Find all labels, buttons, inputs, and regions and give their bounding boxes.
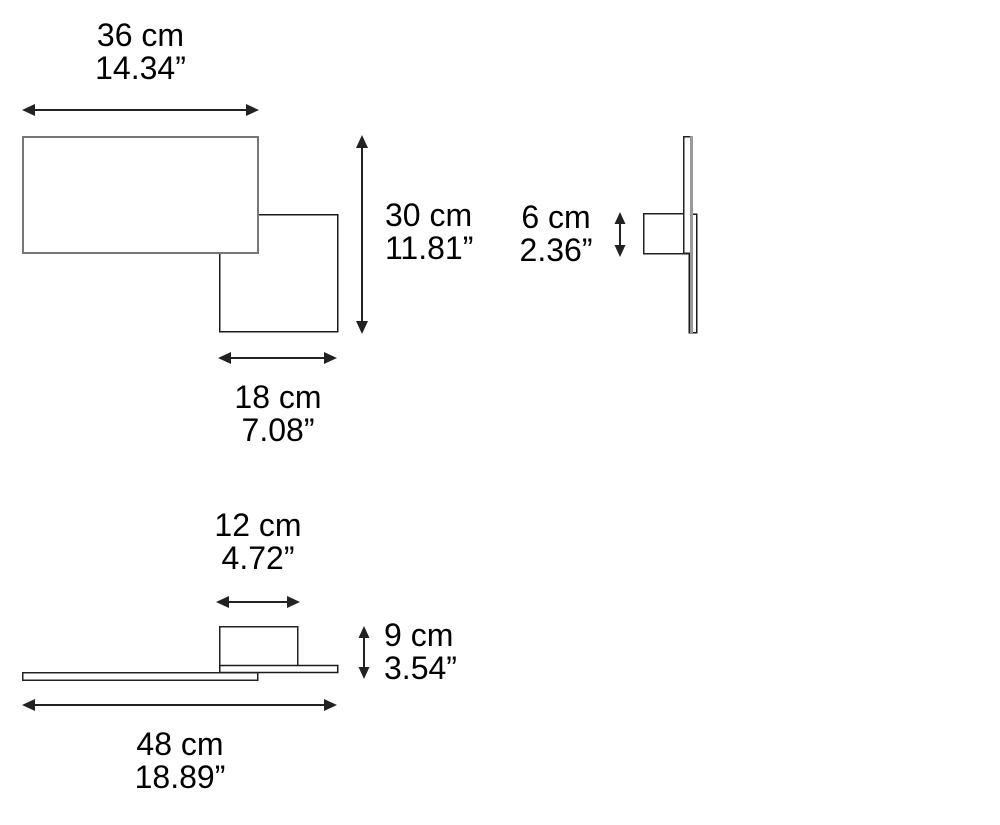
small-panel-width-label: 18 cm 7.08” bbox=[178, 381, 378, 447]
small-panel-width-cm: 18 cm bbox=[178, 381, 378, 414]
front-height-label: 30 cm 11.81” bbox=[385, 199, 473, 265]
total-width-cm: 48 cm bbox=[80, 728, 280, 761]
side-view bbox=[615, 136, 697, 333]
top-depth-arrow-top-icon bbox=[359, 626, 370, 638]
small-width-arrow-left-icon bbox=[218, 352, 231, 364]
diagram-linework bbox=[0, 0, 1000, 825]
front-width-arrow-left-icon bbox=[22, 104, 35, 116]
small-width-arrow-right-icon bbox=[324, 352, 337, 364]
front-height-inch: 11.81” bbox=[385, 232, 473, 265]
small-panel-width-inch: 7.08” bbox=[178, 414, 378, 447]
dimension-diagram: 36 cm 14.34” 30 cm 11.81” 18 cm 7.08” 6 … bbox=[0, 0, 1000, 825]
side-depth-label: 6 cm 2.36” bbox=[496, 201, 616, 267]
front-height-arrow-bottom-icon bbox=[356, 321, 368, 334]
side-depth-arrow-bottom-icon bbox=[615, 245, 626, 257]
front-width-cm: 36 cm bbox=[22, 19, 259, 52]
top-depth-inch: 3.54” bbox=[384, 652, 457, 685]
mount-width-cm: 12 cm bbox=[198, 509, 318, 542]
top-depth-label: 9 cm 3.54” bbox=[384, 619, 457, 685]
front-height-cm: 30 cm bbox=[385, 199, 473, 232]
large-panel bbox=[23, 137, 258, 253]
top-mount-box bbox=[220, 627, 298, 668]
mount-width-arrow-left-icon bbox=[216, 596, 229, 608]
mount-width-label: 12 cm 4.72” bbox=[198, 509, 318, 575]
side-depth-inch: 2.36” bbox=[496, 234, 616, 267]
front-width-arrow-right-icon bbox=[246, 104, 259, 116]
side-mount-box bbox=[644, 214, 688, 254]
total-width-arrow-right-icon bbox=[324, 699, 337, 711]
top-small-panel-strip bbox=[220, 666, 338, 673]
front-view bbox=[22, 104, 368, 364]
front-width-label: 36 cm 14.34” bbox=[22, 19, 259, 85]
total-width-label: 48 cm 18.89” bbox=[80, 728, 280, 794]
mount-width-inch: 4.72” bbox=[198, 542, 318, 575]
side-depth-arrow-top-icon bbox=[615, 212, 626, 224]
front-height-arrow-top-icon bbox=[356, 135, 368, 148]
total-width-inch: 18.89” bbox=[80, 761, 280, 794]
total-width-arrow-left-icon bbox=[22, 699, 35, 711]
top-depth-cm: 9 cm bbox=[384, 619, 457, 652]
top-large-panel-strip bbox=[23, 673, 258, 681]
top-view bbox=[22, 596, 370, 711]
top-depth-arrow-bottom-icon bbox=[359, 667, 370, 679]
mount-width-arrow-right-icon bbox=[287, 596, 300, 608]
side-depth-cm: 6 cm bbox=[496, 201, 616, 234]
front-width-inch: 14.34” bbox=[22, 52, 259, 85]
